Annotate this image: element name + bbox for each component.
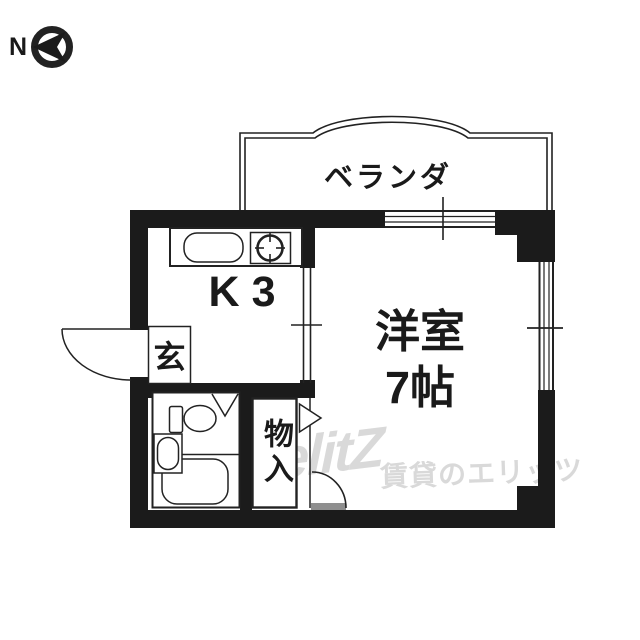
- wall-corner-bottomright-notch: [517, 486, 555, 510]
- window-balcony: [385, 197, 495, 240]
- window-right: [527, 262, 563, 390]
- floorplan-canvas: elitZ 賃貸のエリッツ: [0, 0, 640, 640]
- wall-left-lower: [130, 377, 148, 510]
- kitchen-label: K3: [172, 266, 312, 318]
- balcony-label: ベランダ: [300, 152, 476, 198]
- bathroom: [153, 393, 240, 508]
- stove-icon: [251, 233, 291, 264]
- wall-left-upper: [130, 210, 148, 330]
- room-name: 洋室: [375, 304, 465, 360]
- compass-icon: [33, 30, 70, 65]
- room-door-swing: [311, 472, 346, 510]
- wall-corner-topright-b: [517, 230, 555, 262]
- kitchen-sink-icon: [184, 233, 243, 262]
- wall-top-left: [130, 210, 385, 228]
- wall-bath-storage: [240, 392, 252, 510]
- floorplan-drawing: [0, 0, 640, 640]
- toilet-icon: [170, 406, 217, 433]
- room-size: 7帖: [385, 360, 455, 416]
- washbasin-icon: [154, 434, 182, 473]
- room-label: 洋室 7帖: [348, 296, 492, 424]
- storage-label: 物入: [252, 400, 298, 506]
- compass-north-label: N: [5, 33, 31, 61]
- wall-bottom: [130, 510, 555, 528]
- entrance-door-swing: [62, 329, 131, 380]
- entrance-label: 玄: [148, 328, 191, 382]
- kitchen-counter: [170, 228, 302, 266]
